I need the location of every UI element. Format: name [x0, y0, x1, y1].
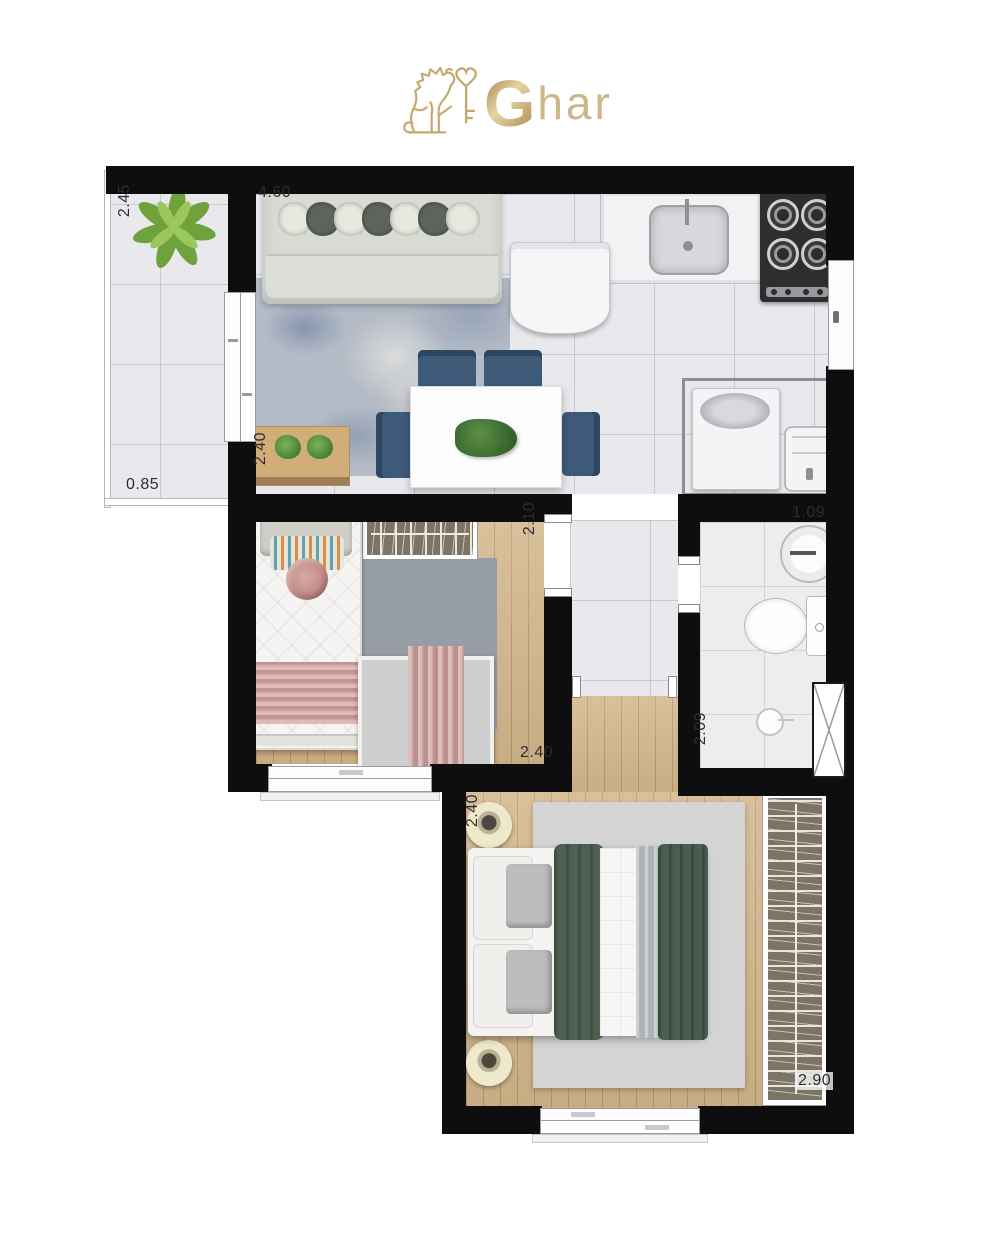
burner-icon: [767, 199, 799, 231]
wall: [228, 522, 256, 792]
single-bed: [250, 508, 362, 750]
wall: [826, 166, 854, 266]
duct-shaft: [812, 682, 846, 778]
pink-blanket: [250, 662, 362, 724]
sideboard-plant: [307, 435, 333, 459]
dim-living-width: 4.60: [258, 184, 291, 202]
brand-rest: har: [537, 76, 612, 130]
washer-lid: [700, 393, 770, 429]
dining-chair: [562, 412, 600, 476]
faucet-icon: [685, 199, 689, 225]
wall: [678, 610, 700, 776]
balcony-rail-left: [104, 170, 111, 508]
brand-initial: G: [484, 70, 535, 136]
flush-button-icon: [815, 623, 824, 632]
sofa: [262, 188, 502, 304]
tank-faucet-icon: [806, 468, 813, 480]
bedroom1-window-sill: [260, 792, 440, 801]
sofa-pillows: [268, 196, 496, 242]
hallway-floor: [570, 520, 678, 698]
dining-chair: [376, 412, 414, 478]
dim-master-depth: 2.40: [464, 794, 482, 827]
sideboard-plant: [275, 435, 301, 459]
dim-bathroom-depth: 2.09: [692, 712, 710, 745]
wall: [544, 594, 572, 792]
bathroom-door-jamb: [678, 556, 700, 565]
rosette-cushion: [286, 558, 328, 600]
master-door-jamb: [572, 676, 581, 698]
dim-bathroom-width: 1.09: [792, 504, 825, 522]
pink-drape: [408, 646, 464, 776]
tank-ridges: [792, 436, 826, 454]
wall: [442, 792, 466, 1134]
door-handle-icon: [833, 311, 839, 323]
wall: [228, 494, 570, 522]
floor-plan-page: G har: [0, 0, 1000, 1234]
second-bed: [358, 656, 494, 774]
balcony-sliding-door: [224, 292, 256, 442]
toilet-bowl: [744, 598, 808, 654]
shower-drain-icon: [756, 708, 784, 736]
bedroom1-door-jamb: [544, 514, 572, 523]
green-duvet: [658, 844, 708, 1040]
wall: [228, 764, 272, 792]
dim-balcony-width: 2.45: [116, 184, 134, 217]
dim-balcony-depth: 0.85: [126, 476, 159, 494]
dining-table: [410, 386, 562, 488]
refrigerator: [510, 242, 610, 334]
sofa-seat: [266, 254, 498, 298]
pillow-icon: [446, 202, 480, 236]
bathroom-door-jamb: [678, 604, 700, 613]
hanger-rail-icon: [768, 798, 822, 1100]
dim-bedroom1-door: 2.10: [521, 502, 539, 535]
double-bed: [468, 848, 705, 1036]
master-window-sill: [532, 1134, 708, 1143]
kitchen-counter: [600, 192, 768, 284]
hallway-wood-floor: [570, 696, 678, 796]
kitchen-sink: [649, 205, 729, 275]
dim-master-width: 2.90: [796, 1072, 833, 1090]
master-door-jamb: [668, 676, 677, 698]
wall: [430, 764, 570, 792]
white-quilt: [600, 848, 640, 1036]
dim-living-depth: 2.40: [252, 432, 270, 465]
toilet: [744, 596, 832, 656]
bedside-lamp-icon: [466, 1040, 512, 1086]
stove-knobs: [766, 287, 828, 297]
stove: [760, 190, 834, 302]
bedroom1-door-jamb: [544, 588, 572, 597]
brand-logo: G har: [398, 60, 628, 145]
wall: [228, 166, 256, 298]
dining-chair: [418, 350, 476, 390]
drain-icon: [683, 241, 693, 251]
lion-key-icon: [398, 62, 484, 144]
wall: [106, 166, 854, 194]
dining-chair: [484, 350, 542, 390]
balcony-plant: [128, 182, 220, 274]
wall: [442, 1106, 542, 1134]
master-window: [540, 1108, 700, 1134]
dim-bedroom1-width: 2.40: [520, 744, 553, 762]
accent-pillow: [506, 950, 552, 1014]
footboard: [254, 734, 358, 746]
accent-pillow: [506, 864, 552, 928]
bedroom1-window: [268, 766, 432, 792]
wall: [678, 494, 854, 522]
table-plant: [455, 419, 517, 457]
washing-machine: [692, 388, 780, 490]
basin-faucet-icon: [790, 551, 816, 555]
kitchen-service-door: [828, 260, 854, 370]
green-runner: [554, 844, 604, 1040]
master-wardrobe: [762, 792, 828, 1106]
burner-icon: [767, 238, 799, 270]
